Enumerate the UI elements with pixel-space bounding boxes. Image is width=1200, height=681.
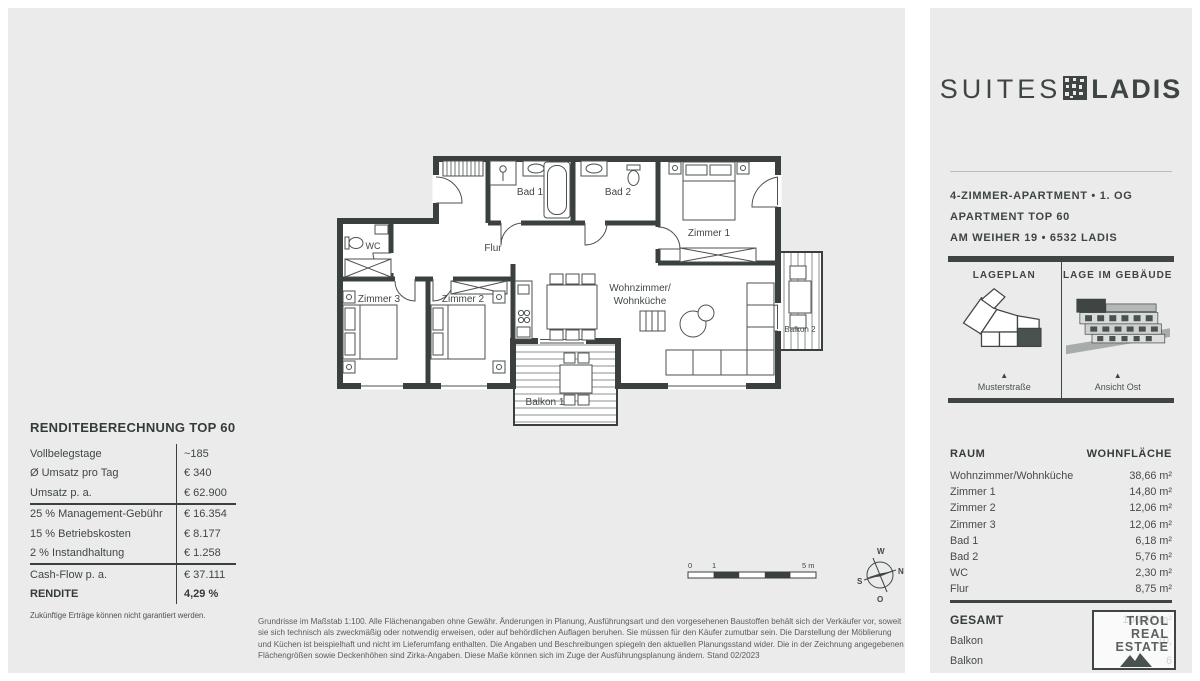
info-line-address: AM WEIHER 19 • 6532 LADIS <box>950 228 1176 249</box>
row-value: € 8.177 <box>176 524 236 544</box>
compass-w: W <box>877 547 885 556</box>
header-raum: RAUM <box>950 448 985 468</box>
row-label: 25 % Management-Gebühr <box>30 508 176 520</box>
room-name: Zimmer 1 <box>950 486 996 498</box>
table-row: Umsatz p. a. € 62.900 <box>30 483 236 505</box>
row-label: RENDITE <box>30 588 176 600</box>
scale-bar: 0 1 5 m <box>686 558 822 586</box>
rendite-footnote: Zukünftige Erträge können nicht garantie… <box>30 611 236 620</box>
room-name: Zimmer 3 <box>950 519 996 531</box>
row-label: Vollbelegstage <box>30 448 176 460</box>
disclaimer-text: Grundrisse im Maßstab 1:100. Alle Fläche… <box>258 616 906 662</box>
table-row: Vollbelegstage ~185 <box>30 444 236 464</box>
lageplan-caption-text: Musterstraße <box>978 382 1031 392</box>
compass-rose: W N S O <box>853 544 907 606</box>
header-wohnflaeche: WOHNFLÄCHE <box>1087 448 1172 468</box>
room-area: 38,66 m² <box>1129 470 1172 482</box>
room-name: Bad 1 <box>950 535 978 547</box>
compass-s: S <box>857 577 863 586</box>
label-balkon1: Balkon 1 <box>526 397 565 408</box>
rendite-table: RENDITEBERECHNUNG TOP 60 Vollbelegstage … <box>30 420 236 620</box>
triangle-marker-icon: ▲ <box>1062 371 1175 380</box>
divider <box>950 171 1172 172</box>
room-name: Wohnzimmer/Wohnküche <box>950 470 1073 482</box>
table-row: Cash-Flow p. a. € 37.111 <box>30 565 236 585</box>
gebaeude-caption-text: Ansicht Ost <box>1095 382 1141 392</box>
total-divider <box>950 600 1172 603</box>
main-panel: Flur WC Bad 1 Bad 2 Zimmer 1 Zimmer 2 Zi… <box>8 8 905 673</box>
table-row: Zimmer 114,80 m² <box>950 484 1172 500</box>
lageplan-title: LAGEPLAN <box>948 270 1061 281</box>
row-label: Cash-Flow p. a. <box>30 569 176 581</box>
gebaeude-title: LAGE IM GEBÄUDE <box>1062 270 1175 281</box>
apartment-info: 4-ZIMMER-APARTMENT • 1. OG APARTMENT TOP… <box>950 186 1176 249</box>
row-label: Ø Umsatz pro Tag <box>30 467 176 479</box>
row-label: 2 % Instandhaltung <box>30 547 176 559</box>
table-row: WC2,30 m² <box>950 565 1172 581</box>
section-bar-bottom <box>948 398 1174 403</box>
building-image <box>1066 287 1170 359</box>
table-row: Wohnzimmer/Wohnküche38,66 m² <box>950 468 1172 484</box>
label-zimmer2: Zimmer 2 <box>442 294 485 305</box>
table-row: Bad 25,76 m² <box>950 549 1172 565</box>
label-zimmer3: Zimmer 3 <box>358 294 401 305</box>
balkon-name: Balkon <box>950 655 983 667</box>
row-value: € 340 <box>176 464 236 484</box>
room-name: Bad 2 <box>950 551 978 563</box>
label-wc: WC <box>366 241 381 251</box>
table-row: Zimmer 212,06 m² <box>950 500 1172 516</box>
room-table-header: RAUM WOHNFLÄCHE <box>950 448 1172 468</box>
room-name: Flur <box>950 583 969 595</box>
brand-suites: SUITES <box>940 74 1062 104</box>
label-flur: Flur <box>484 243 502 254</box>
info-line-type: 4-ZIMMER-APARTMENT • 1. OG <box>950 186 1176 207</box>
row-value: € 37.111 <box>176 565 236 585</box>
room-name: Zimmer 2 <box>950 502 996 514</box>
scale-0: 0 <box>688 561 692 570</box>
row-label: 15 % Betriebskosten <box>30 528 176 540</box>
balkon-name: Balkon <box>950 635 983 647</box>
table-row: 2 % Instandhaltung € 1.258 <box>30 544 236 566</box>
table-row: Zimmer 312,06 m² <box>950 517 1172 533</box>
table-row: Bad 16,18 m² <box>950 533 1172 549</box>
row-value: € 16.354 <box>176 505 236 525</box>
row-value: ~185 <box>176 444 236 464</box>
gebaeude-caption: ▲ Ansicht Ost <box>1062 371 1175 392</box>
lageplan-column: LAGEPLAN ▲ Musterstraße <box>948 262 1061 398</box>
room-area: 6,18 m² <box>1135 535 1172 547</box>
row-value: € 62.900 <box>176 483 236 503</box>
highlighted-building <box>1018 328 1041 346</box>
room-area: 12,06 m² <box>1129 519 1172 531</box>
brand-mark-icon <box>1063 76 1087 100</box>
table-row: 15 % Betriebskosten € 8.177 <box>30 524 236 544</box>
room-area-table: RAUM WOHNFLÄCHE Wohnzimmer/Wohnküche38,6… <box>950 448 1172 598</box>
brand-ladis: LADIS <box>1091 74 1182 104</box>
label-balkon2: Balkon 2 <box>784 325 816 334</box>
room-name: WC <box>950 567 968 579</box>
floorplan-drawing: Flur WC Bad 1 Bad 2 Zimmer 1 Zimmer 2 Zi… <box>333 153 833 443</box>
room-area: 14,80 m² <box>1129 486 1172 498</box>
room-area: 5,76 m² <box>1135 551 1172 563</box>
brand-logo: SUITESLADIS <box>930 74 1192 105</box>
label-bad1: Bad 1 <box>517 187 544 198</box>
room-area: 8,75 m² <box>1135 583 1172 595</box>
table-row: Flur8,75 m² <box>950 581 1172 597</box>
scale-1: 1 <box>712 561 716 570</box>
tirol-real-estate-logo: TIROL REAL ESTATE <box>1092 610 1176 670</box>
row-value: 4,29 % <box>176 585 236 605</box>
room-area: 2,30 m² <box>1135 567 1172 579</box>
row-label: Umsatz p. a. <box>30 487 176 499</box>
mountain-icon <box>1118 653 1154 667</box>
compass-o: O <box>877 595 883 604</box>
compass-n: N <box>898 567 904 576</box>
info-line-top: APARTMENT TOP 60 <box>950 207 1176 228</box>
room-area: 12,06 m² <box>1129 502 1172 514</box>
label-zimmer1: Zimmer 1 <box>688 228 731 239</box>
gebaeude-column: LAGE IM GEBÄUDE ▲ Ansi <box>1061 262 1175 398</box>
total-label: GESAMT <box>950 613 1004 627</box>
table-row: RENDITE 4,29 % <box>30 585 236 605</box>
table-row: 25 % Management-Gebühr € 16.354 <box>30 505 236 525</box>
label-bad2: Bad 2 <box>605 187 632 198</box>
scale-5m: 5 m <box>802 561 815 570</box>
location-section: LAGEPLAN ▲ Musterstraße LAGE IM GEBÄUDE <box>948 262 1174 398</box>
rendite-title: RENDITEBERECHNUNG TOP 60 <box>30 420 236 435</box>
row-value: € 1.258 <box>176 544 236 564</box>
siteplan-image <box>954 287 1054 359</box>
table-row: Ø Umsatz pro Tag € 340 <box>30 464 236 484</box>
info-panel: SUITESLADIS 4-ZIMMER-APARTMENT • 1. OG A… <box>930 8 1192 673</box>
triangle-marker-icon: ▲ <box>948 371 1061 380</box>
lageplan-caption: ▲ Musterstraße <box>948 371 1061 392</box>
label-wohnzimmer-2: Wohnküche <box>614 296 667 307</box>
label-wohnzimmer-1: Wohnzimmer/ <box>609 283 671 294</box>
